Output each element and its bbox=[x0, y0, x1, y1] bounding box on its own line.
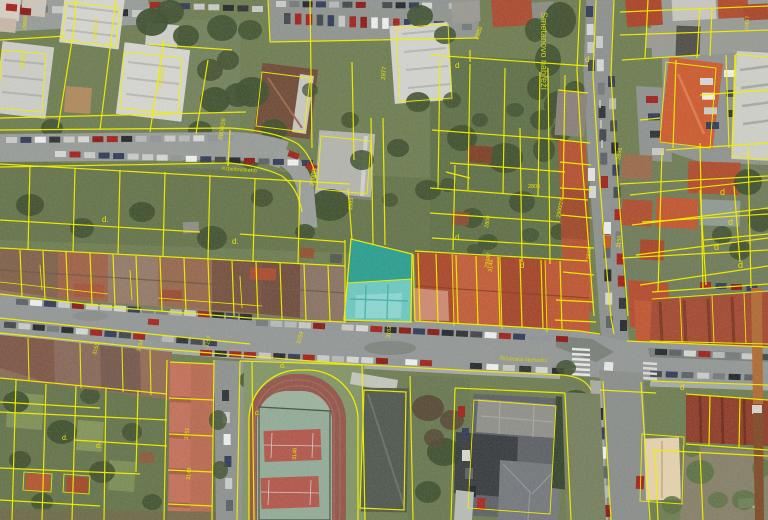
svg-text:2977: 2977 bbox=[381, 66, 388, 80]
svg-text:2809: 2809 bbox=[586, 247, 593, 260]
svg-text:2805: 2805 bbox=[528, 184, 540, 190]
svg-text:d: d bbox=[520, 261, 524, 270]
svg-text:3162: 3162 bbox=[386, 325, 393, 338]
svg-text:d: d bbox=[455, 233, 459, 242]
svg-text:d.: d. bbox=[232, 237, 239, 246]
svg-text:d.: d. bbox=[96, 443, 102, 450]
svg-text:d: d bbox=[728, 217, 733, 227]
svg-text:3146: 3146 bbox=[292, 448, 298, 460]
svg-text:d.: d. bbox=[255, 410, 261, 417]
svg-text:29005: 29005 bbox=[22, 16, 29, 31]
svg-text:d: d bbox=[455, 61, 459, 70]
svg-text:d: d bbox=[738, 260, 743, 270]
svg-text:d: d bbox=[680, 383, 684, 392]
svg-text:3151: 3151 bbox=[184, 427, 191, 440]
svg-text:d.: d. bbox=[62, 435, 68, 442]
svg-text:Smetanovo nábřeží: Smetanovo nábřeží bbox=[539, 12, 549, 91]
svg-text:3148: 3148 bbox=[186, 467, 193, 480]
svg-text:3150: 3150 bbox=[616, 235, 623, 248]
svg-text:d.: d. bbox=[280, 363, 286, 370]
svg-text:d: d bbox=[714, 242, 719, 252]
svg-text:2983: 2983 bbox=[348, 197, 355, 210]
svg-text:d: d bbox=[585, 55, 589, 64]
svg-text:d.: d. bbox=[102, 215, 109, 224]
svg-text:24617: 24617 bbox=[744, 16, 751, 31]
svg-text:d: d bbox=[720, 187, 725, 197]
svg-text:3149: 3149 bbox=[488, 259, 495, 272]
